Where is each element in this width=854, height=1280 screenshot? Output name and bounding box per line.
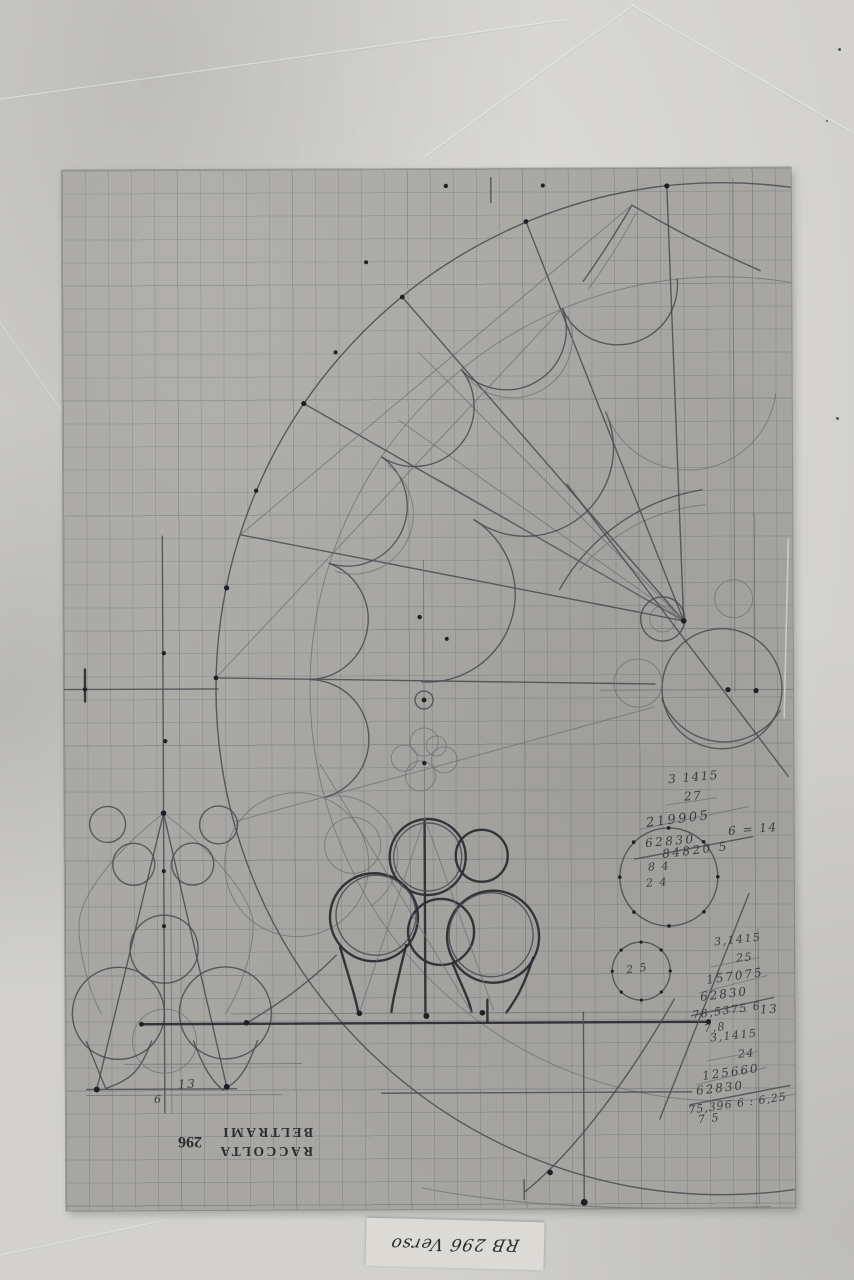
dimension-6: 6 [154, 1093, 163, 1106]
tracery-detail-sketch [224, 764, 539, 1023]
stamp-line1: RACCOLTA [218, 1141, 313, 1160]
stamp-number: 296 [178, 1132, 202, 1150]
dust-speck [838, 48, 841, 51]
catalogue-slip-text: RB 296 Verso [389, 1233, 522, 1254]
calc2-note-13: 13 [760, 1001, 779, 1016]
archival-photograph: { "photo": { "description": "pencil cons… [0, 0, 854, 1280]
calc3-line: 24 [737, 1046, 755, 1060]
calc3-result: 7 5 [697, 1111, 720, 1126]
calc2-line: 25 [735, 950, 753, 964]
circle24-value: 8 4 [648, 859, 671, 874]
dust-speck [826, 120, 828, 122]
dimension-13: 13 [178, 1077, 197, 1092]
circle24-value: 2 4 [646, 875, 669, 890]
calc1-line: 27 [684, 788, 703, 803]
finial-study-sketch [62, 536, 282, 1114]
rose-window-sketch [214, 175, 795, 1197]
stamp-line2: BELTRAMI [218, 1122, 313, 1141]
archive-stamp: RACCOLTA BELTRAMI 296 [178, 1122, 313, 1160]
pencil-drawing [62, 167, 796, 1210]
graph-paper-sheet [62, 167, 796, 1210]
catalogue-slip: RB 296 Verso [365, 1218, 544, 1271]
dust-speck [836, 417, 839, 420]
